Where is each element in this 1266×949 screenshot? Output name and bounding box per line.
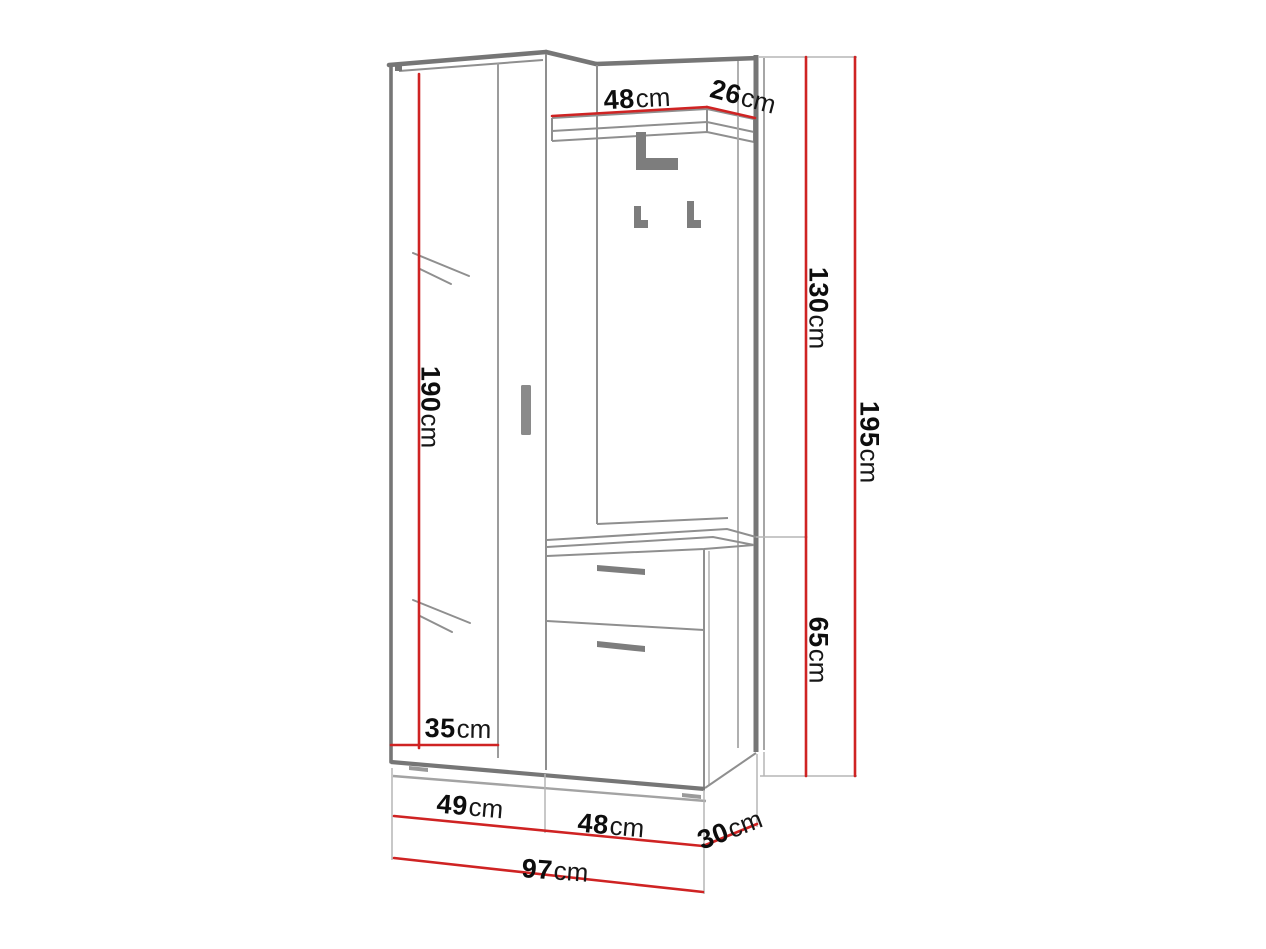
mirror-shine-3	[413, 600, 470, 623]
dimension-diagram-page: 48cm 26cm 130cm 195cm 190cm 65cm 35cm 49…	[0, 0, 1266, 949]
wardrobe-top-corner-diagonal	[546, 52, 596, 64]
dim-label-lower-cabinet-height: 65cm	[805, 617, 832, 684]
wardrobe-top-edge	[389, 52, 546, 65]
dim-label-lower-cabinet-width: 48cm	[577, 810, 646, 843]
dim-value: 97	[521, 855, 554, 884]
shelf-front-top-edge	[552, 122, 754, 132]
furniture-line-drawing	[0, 0, 1266, 949]
dim-line-widths-49-48	[394, 816, 703, 846]
dim-label-upper-section-height: 130cm	[805, 267, 832, 349]
dim-label-mirror-door-height: 190cm	[417, 366, 444, 448]
corner-nub	[395, 66, 402, 71]
dim-unit: cm	[806, 314, 832, 349]
dim-value: 48	[577, 810, 610, 840]
wardrobe-door-handle	[521, 385, 531, 435]
dim-unit: cm	[456, 715, 491, 742]
dim-unit: cm	[857, 448, 883, 483]
flap-handle	[597, 641, 645, 652]
dim-value: 35	[424, 715, 456, 743]
dim-value: 195	[856, 401, 883, 448]
drawer-divider-line	[547, 621, 704, 630]
dim-unit: cm	[738, 84, 778, 118]
dim-unit: cm	[609, 812, 646, 841]
dim-value: 65	[805, 617, 832, 648]
foot-right	[682, 793, 701, 799]
coat-hook-small-right	[687, 201, 701, 228]
dim-label-mirror-door-width: 35cm	[424, 715, 491, 743]
dim-label-shelf-width: 48cm	[603, 84, 671, 114]
dim-label-total-height: 195cm	[856, 401, 883, 483]
shoe-cabinet	[547, 529, 756, 788]
mirror-shine-2	[420, 269, 451, 284]
drawer-handle	[597, 565, 645, 575]
cabinet-top-front-edge	[547, 545, 754, 556]
base-top-edge	[391, 762, 705, 789]
dim-unit: cm	[635, 84, 671, 112]
dim-unit: cm	[468, 793, 505, 822]
back-panel-top-edge	[596, 58, 758, 64]
dim-unit: cm	[418, 413, 444, 448]
dim-value: 48	[603, 86, 635, 115]
back-panel-bottom-edge	[597, 518, 728, 524]
dim-label-total-width: 97cm	[521, 855, 589, 887]
dim-value: 49	[436, 791, 469, 821]
dim-unit: cm	[806, 649, 832, 684]
coat-hook-large	[636, 132, 678, 170]
side-panel	[738, 55, 764, 752]
shelf-front-bottom-edge	[552, 132, 754, 142]
dim-label-wardrobe-width: 49cm	[436, 791, 505, 824]
mirror-shine-1	[413, 253, 469, 276]
dim-unit: cm	[553, 857, 589, 885]
cabinet-handles	[597, 565, 645, 652]
dim-value: 130	[805, 267, 832, 314]
coat-hooks	[634, 132, 701, 228]
coat-hook-small-left	[634, 206, 648, 228]
cabinet-side-bottom-edge	[705, 753, 756, 788]
dim-value: 190	[417, 366, 444, 413]
mirror-shine-4	[420, 616, 452, 632]
